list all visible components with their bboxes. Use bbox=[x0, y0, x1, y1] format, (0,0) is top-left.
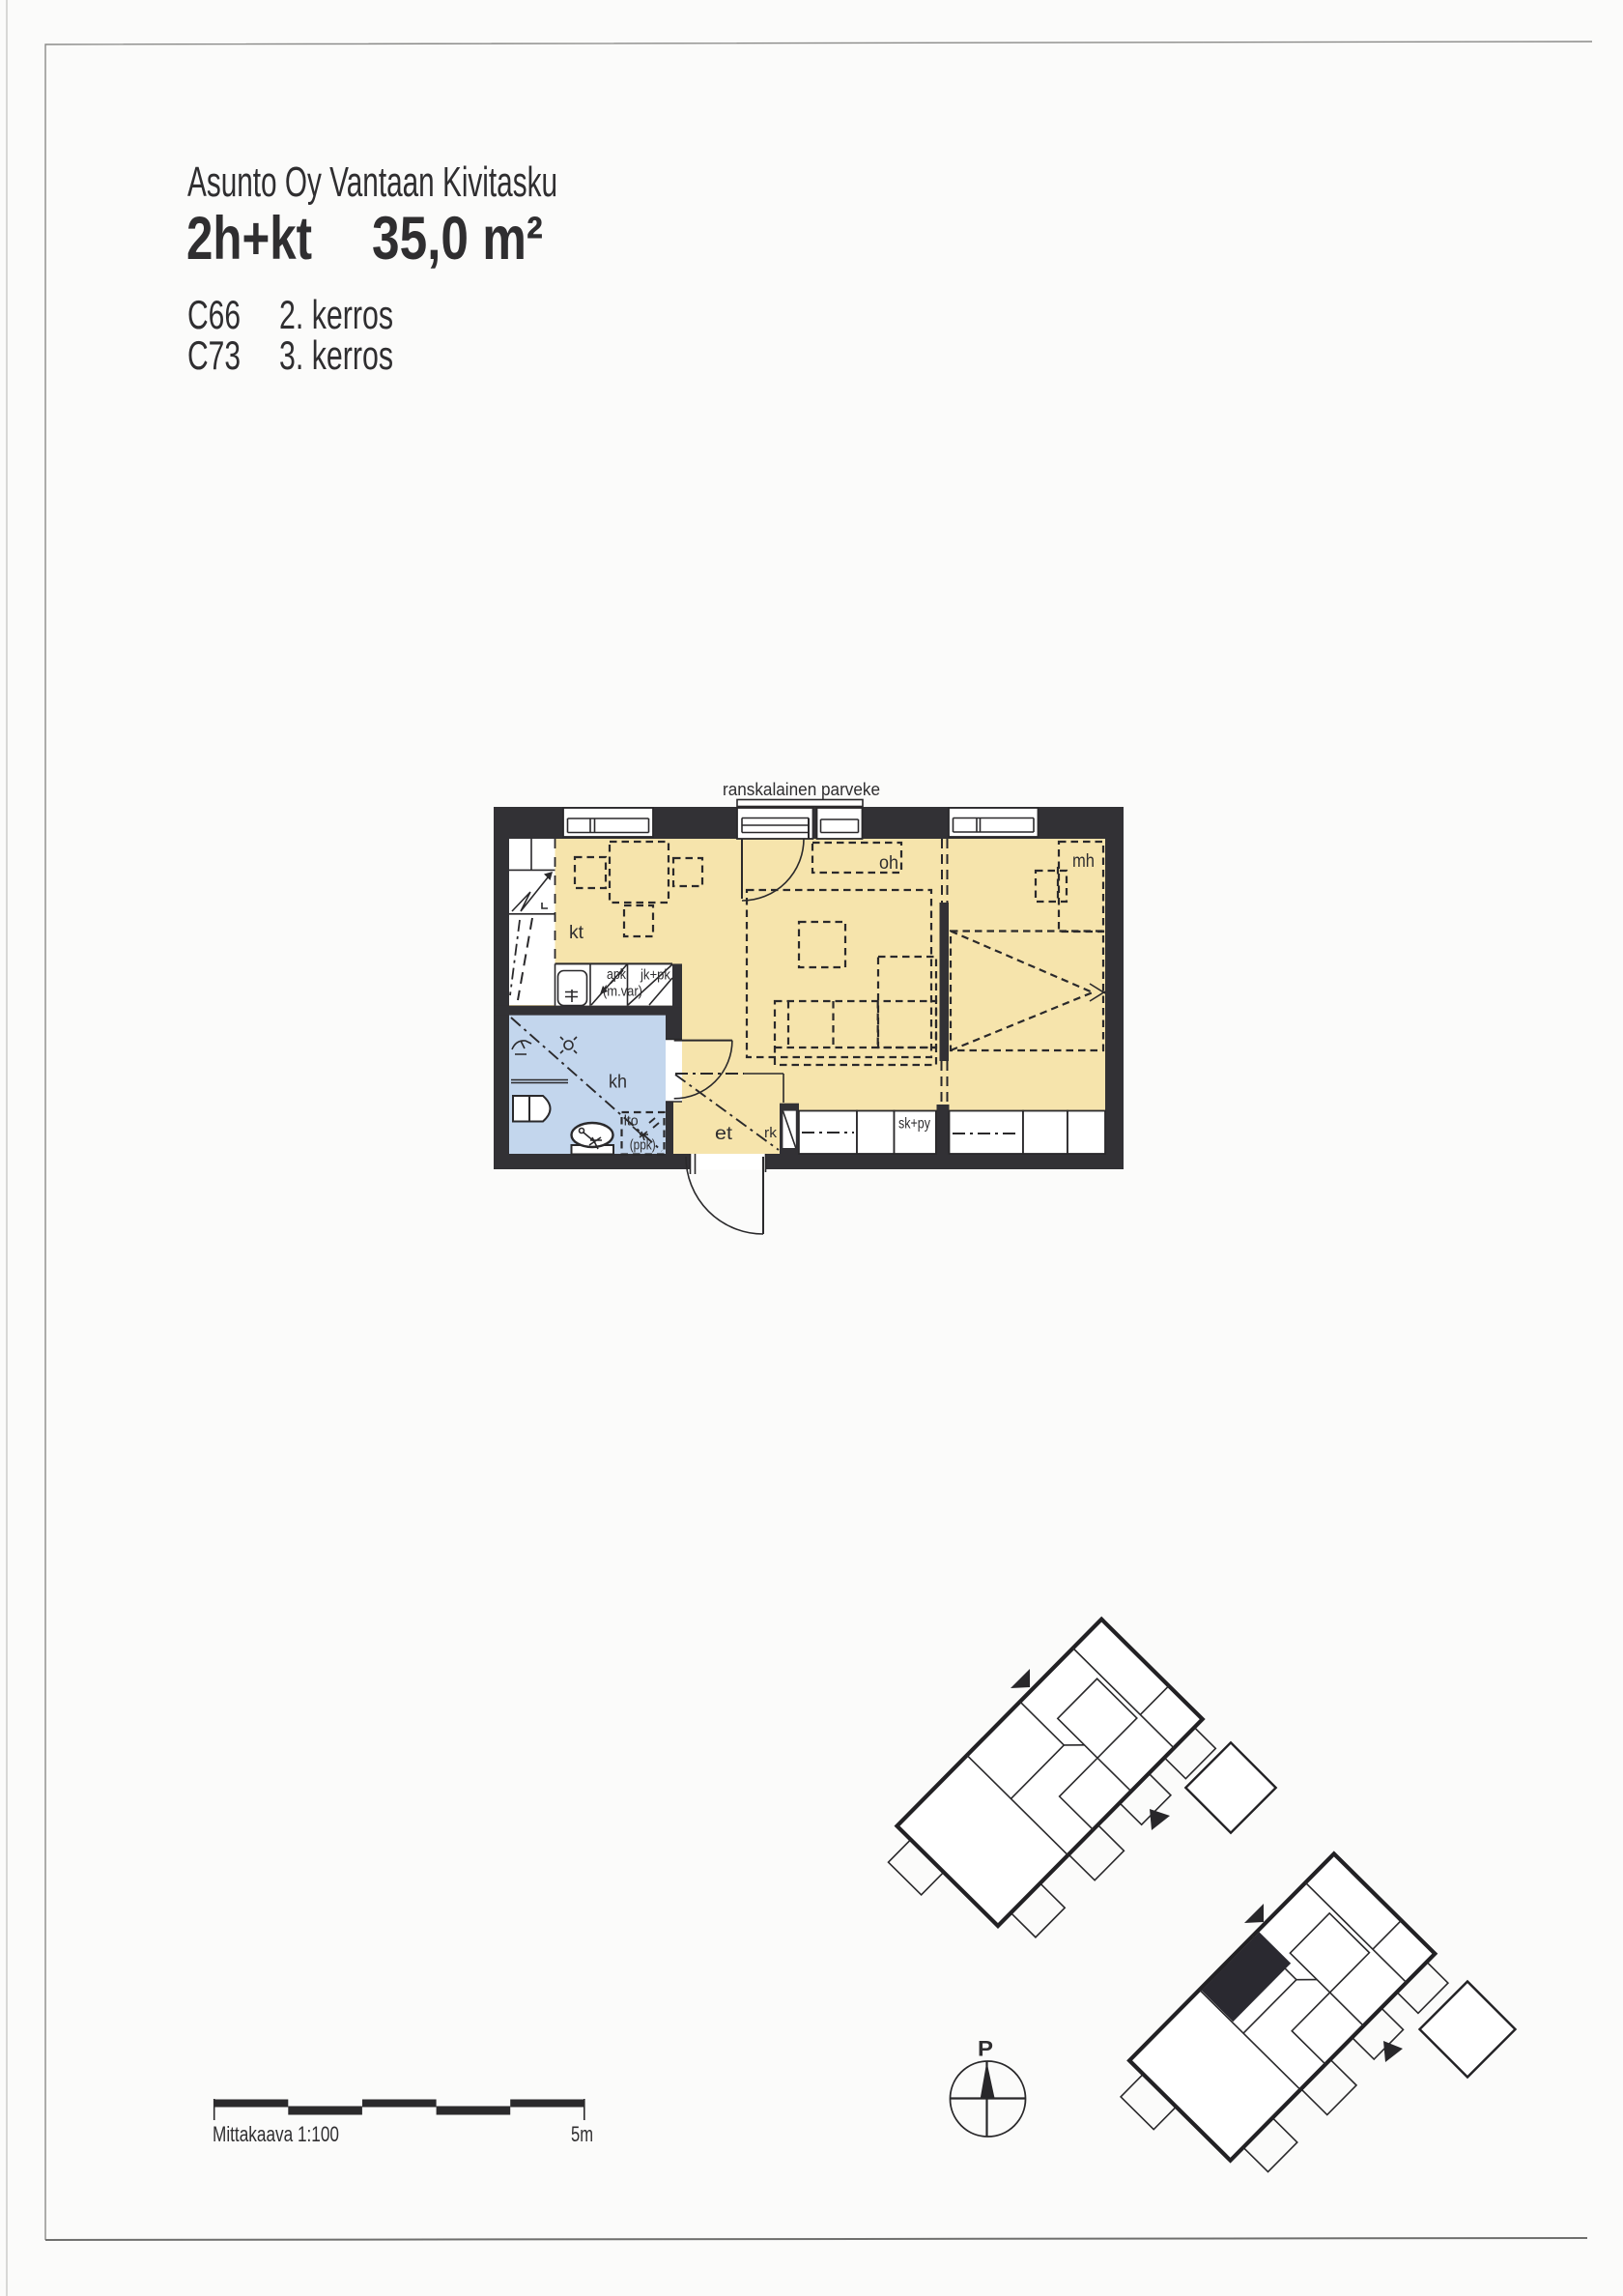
svg-text:kt: kt bbox=[569, 923, 584, 943]
svg-text:apk: apk bbox=[607, 966, 626, 983]
svg-text:sk+py: sk+py bbox=[898, 1115, 930, 1132]
svg-text:35,0 m²: 35,0 m² bbox=[372, 205, 543, 273]
svg-text:5m: 5m bbox=[571, 2122, 593, 2146]
svg-text:rk: rk bbox=[764, 1125, 778, 1141]
svg-text:lto: lto bbox=[624, 1113, 639, 1130]
svg-text:Mittakaava 1:100: Mittakaava 1:100 bbox=[213, 2122, 339, 2146]
svg-text:(ppk): (ppk) bbox=[630, 1136, 656, 1153]
svg-text:Asunto Oy Vantaan Kivitasku: Asunto Oy Vantaan Kivitasku bbox=[187, 158, 557, 206]
svg-text:ranskalainen parveke: ranskalainen parveke bbox=[723, 780, 880, 799]
svg-text:(m.var): (m.var) bbox=[603, 984, 642, 1000]
svg-text:oh: oh bbox=[879, 853, 898, 874]
svg-text:C66: C66 bbox=[187, 292, 241, 337]
svg-text:kh: kh bbox=[609, 1073, 627, 1093]
svg-text:mh: mh bbox=[1072, 851, 1095, 872]
svg-text:3. kerros: 3. kerros bbox=[279, 332, 393, 378]
svg-text:jk+pk: jk+pk bbox=[640, 967, 670, 984]
svg-text:2. kerros: 2. kerros bbox=[279, 292, 393, 337]
svg-text:P: P bbox=[978, 2037, 993, 2061]
svg-text:et: et bbox=[715, 1124, 733, 1144]
svg-text:C73: C73 bbox=[187, 332, 241, 378]
svg-text:2h+kt: 2h+kt bbox=[186, 205, 312, 273]
